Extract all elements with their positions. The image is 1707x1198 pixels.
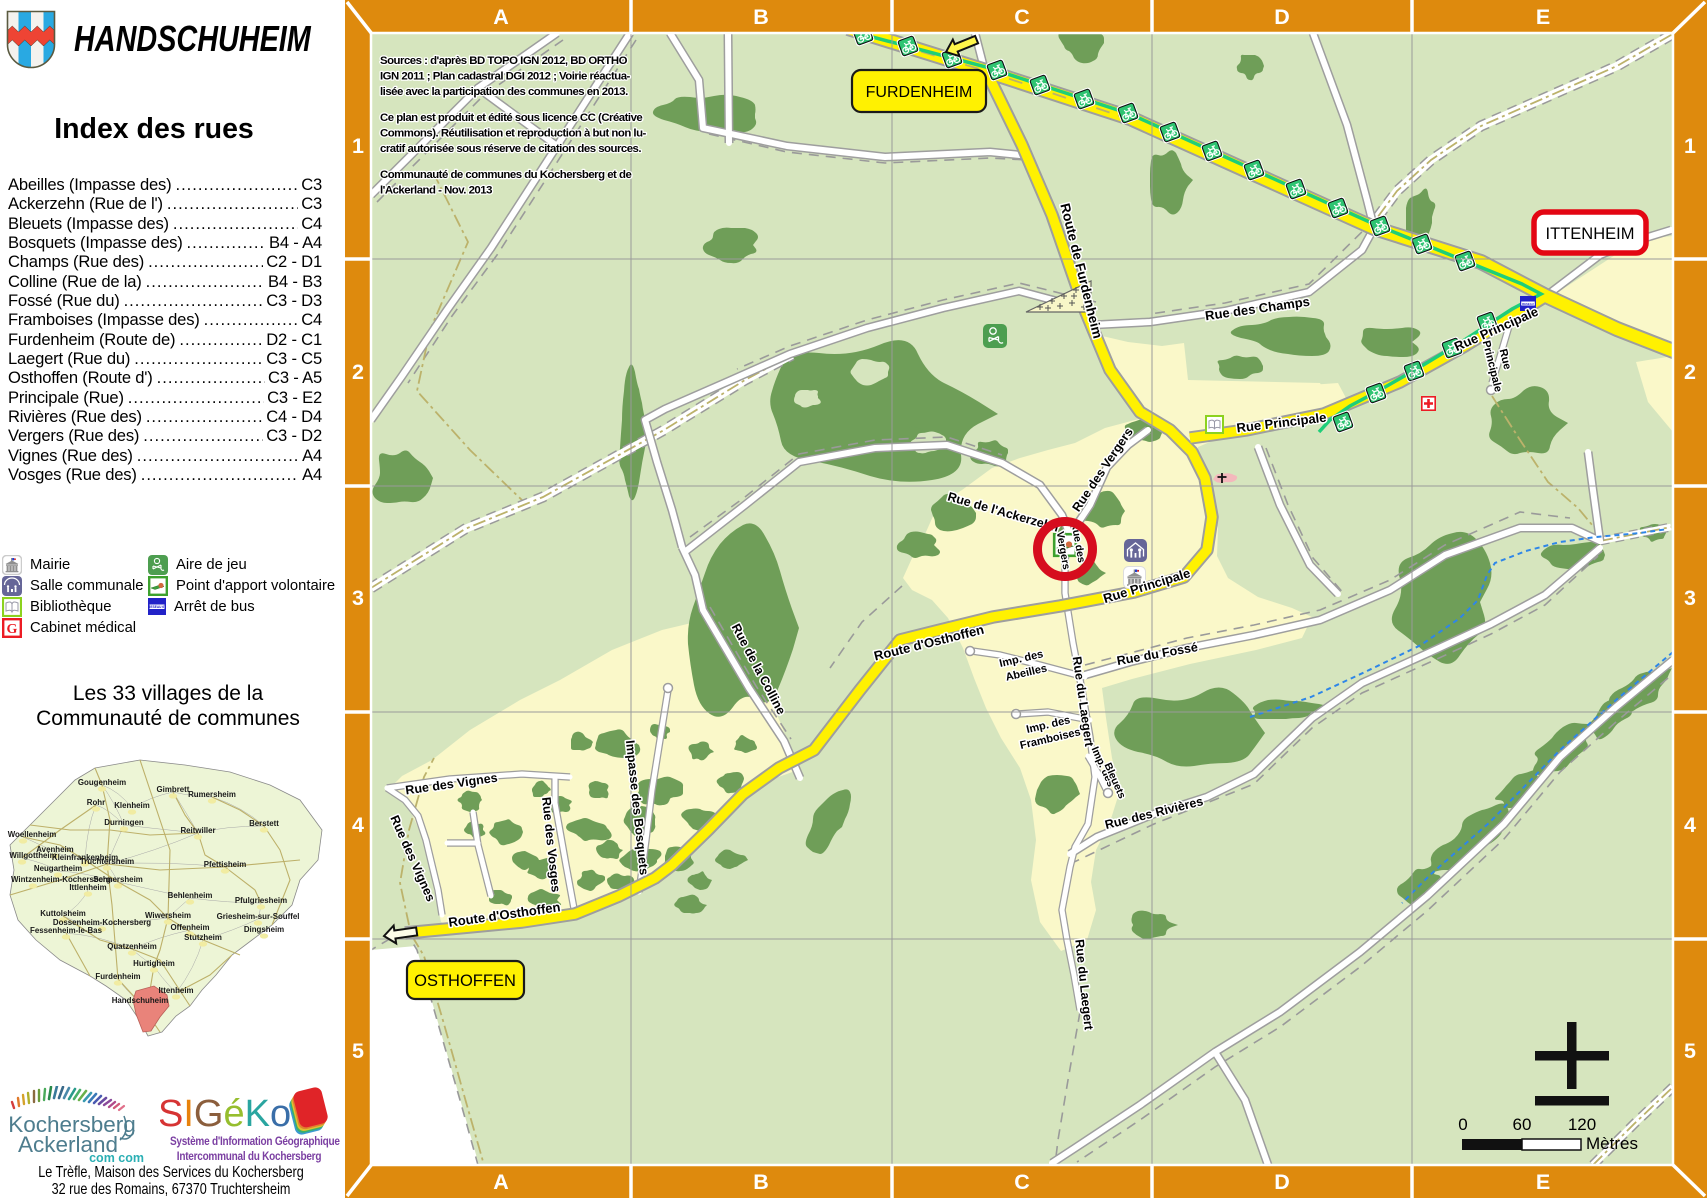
- svg-text:Quatzenheim: Quatzenheim: [107, 942, 157, 951]
- svg-text:l'Ackerland - Nov. 2013: l'Ackerland - Nov. 2013: [380, 185, 492, 197]
- svg-text:A: A: [493, 5, 509, 29]
- svg-text:3: 3: [352, 586, 364, 610]
- svg-text:Durningen: Durningen: [104, 818, 144, 827]
- svg-text:5: 5: [352, 1039, 364, 1063]
- svg-text:Ittlenheim: Ittlenheim: [69, 883, 106, 892]
- svg-text:Behlenheim: Behlenheim: [168, 891, 213, 900]
- svg-text:com com: com com: [89, 1151, 144, 1165]
- svg-text:IGN 2011 ; Plan cadastral DGI: IGN 2011 ; Plan cadastral DGI 2012 ; Voi…: [380, 71, 631, 83]
- svg-text:120: 120: [1568, 1115, 1596, 1134]
- svg-text:C: C: [1014, 1170, 1030, 1194]
- svg-text:FURDENHEIM: FURDENHEIM: [866, 84, 973, 101]
- svg-text:Stutzheim: Stutzheim: [184, 933, 222, 942]
- svg-text:4: 4: [1684, 813, 1696, 837]
- svg-text:ITTENHEIM: ITTENHEIM: [1546, 225, 1635, 243]
- svg-text:Reitwiller: Reitwiller: [180, 826, 215, 835]
- svg-text:0: 0: [1458, 1115, 1467, 1134]
- svg-text:RESEAU 67: RESEAU 67: [148, 605, 166, 609]
- svg-text:Neugartheim: Neugartheim: [34, 864, 82, 873]
- svg-text:4: 4: [352, 813, 364, 837]
- svg-text:Pfettisheim: Pfettisheim: [204, 860, 247, 869]
- svg-text:Rumersheim: Rumersheim: [188, 790, 236, 799]
- svg-text:1: 1: [1684, 134, 1696, 158]
- svg-text:2: 2: [1684, 360, 1696, 384]
- svg-text:E: E: [1536, 5, 1550, 29]
- svg-text:Communauté de communes du Koch: Communauté de communes du Kochersberg et…: [380, 169, 631, 181]
- svg-text:cratif autorisée sous réserve: cratif autorisée sous réserve de citatio…: [380, 143, 641, 155]
- svg-text:Griesheim-sur-Souffel: Griesheim-sur-Souffel: [217, 912, 300, 921]
- svg-text:Truchtersheim: Truchtersheim: [80, 857, 134, 866]
- svg-text:B: B: [753, 5, 769, 29]
- svg-text:1: 1: [352, 134, 364, 158]
- svg-text:OSTHOFFEN: OSTHOFFEN: [414, 972, 516, 990]
- svg-text:A: A: [493, 1170, 509, 1194]
- svg-text:Sources : d'après BD TOPO IGN: Sources : d'après BD TOPO IGN 2012, BD O…: [380, 55, 628, 67]
- svg-text:Woellenheim: Woellenheim: [8, 830, 57, 839]
- svg-text:C: C: [1014, 5, 1030, 29]
- svg-text:D: D: [1274, 5, 1290, 29]
- svg-text:Klenheim: Klenheim: [114, 801, 150, 810]
- svg-text:B: B: [753, 1170, 769, 1194]
- svg-text:Mètres: Mètres: [1586, 1134, 1638, 1153]
- svg-text:3: 3: [1684, 586, 1696, 610]
- svg-text:Hurtigheim: Hurtigheim: [133, 959, 175, 968]
- svg-text:Handschuheim: Handschuheim: [112, 996, 169, 1005]
- svg-text:Commons). Réutilisation et rep: Commons). Réutilisation et reproduction …: [380, 128, 647, 140]
- svg-text:lisée avec la participation de: lisée avec la participation des communes…: [380, 86, 628, 98]
- svg-text:Gougenheim: Gougenheim: [78, 778, 126, 787]
- svg-text:E: E: [1536, 1170, 1550, 1194]
- svg-text:60: 60: [1513, 1115, 1532, 1134]
- svg-text:Ce plan est produit et édité s: Ce plan est produit et édité sous licenc…: [380, 112, 642, 124]
- svg-text:Rohr: Rohr: [87, 798, 105, 807]
- svg-text:Gimbrett: Gimbrett: [157, 785, 190, 794]
- svg-text:Offenheim: Offenheim: [170, 923, 209, 932]
- svg-text:Ittenheim: Ittenheim: [158, 986, 193, 995]
- svg-text:G: G: [7, 622, 18, 637]
- svg-text:Dingsheim: Dingsheim: [244, 925, 284, 934]
- svg-text:5: 5: [1684, 1039, 1696, 1063]
- svg-text:SIGéKo: SIGéKo: [160, 1093, 291, 1135]
- svg-text:Wiwersheim: Wiwersheim: [145, 911, 191, 920]
- svg-text:Berstett: Berstett: [249, 819, 279, 828]
- svg-text:Furdenheim: Furdenheim: [95, 972, 140, 981]
- svg-text:Kuttolsheim: Kuttolsheim: [40, 909, 86, 918]
- svg-text:Fessenheim-le-Bas: Fessenheim-le-Bas: [30, 926, 103, 935]
- svg-text:2: 2: [352, 360, 364, 384]
- svg-text:D: D: [1274, 1170, 1290, 1194]
- svg-text:Pfulgriesheim: Pfulgriesheim: [235, 896, 287, 905]
